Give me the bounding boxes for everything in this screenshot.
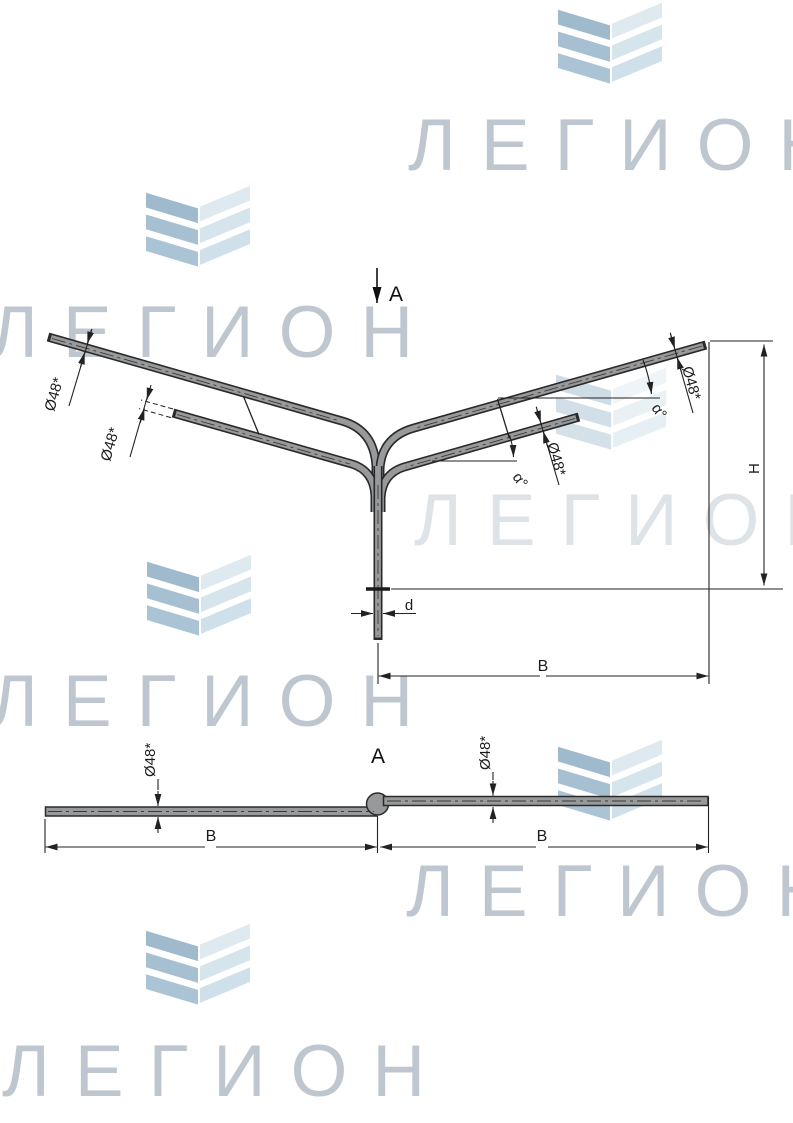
dim-diameter-top-right: Ø48* bbox=[477, 736, 494, 823]
diameter-label: Ø48* bbox=[678, 364, 704, 402]
diameter-label: Ø48* bbox=[543, 440, 569, 478]
height-label: H bbox=[746, 463, 763, 474]
brand-chevron-icon bbox=[146, 186, 250, 267]
dim-diameter-top-left: Ø48* bbox=[142, 743, 159, 833]
reach-label: B bbox=[537, 828, 548, 845]
diameter-label: Ø48* bbox=[142, 743, 159, 777]
brand-watermark-text: ЛЕГИОН bbox=[406, 851, 793, 932]
watermark-tile-4: ЛЕГИОН bbox=[0, 555, 438, 742]
diameter-label: Ø48* bbox=[42, 375, 68, 413]
dim-pipe-end: d bbox=[351, 589, 416, 614]
brand-watermark-text: ЛЕГИОН bbox=[2, 1031, 450, 1112]
brand-chevron-icon bbox=[146, 924, 250, 1005]
pipe-end-label: d bbox=[405, 597, 413, 614]
dim-reach-top-left: B bbox=[45, 816, 378, 853]
brand-watermark-text: ЛЕГИОН bbox=[0, 292, 438, 373]
reach-label: B bbox=[206, 828, 217, 845]
brand-chevron-icon bbox=[147, 555, 251, 636]
dim-diameter-lower-left: Ø48* bbox=[98, 385, 173, 463]
watermark-tile-5: ЛЕГИОН bbox=[406, 740, 793, 932]
brand-chevron-icon bbox=[558, 740, 662, 821]
drawing-page: ЛЕГИОН ЛЕГИОН ЛЕГИОН ЛЕГИОН ЛЕГИОН ЛЕГИО… bbox=[0, 0, 793, 1123]
brand-chevron-icon bbox=[558, 3, 662, 84]
brand-watermark-text: ЛЕГИОН bbox=[408, 105, 793, 186]
reach-label: B bbox=[538, 658, 549, 675]
watermark-tile-6: ЛЕГИОН bbox=[2, 924, 450, 1112]
technical-drawing: ЛЕГИОН ЛЕГИОН ЛЕГИОН ЛЕГИОН ЛЕГИОН ЛЕГИО… bbox=[0, 0, 793, 1123]
section-label: A bbox=[389, 283, 403, 306]
diameter-label: Ø48* bbox=[98, 425, 124, 463]
diameter-label: Ø48* bbox=[477, 736, 494, 770]
brand-watermark-text: ЛЕГИОН bbox=[414, 480, 793, 561]
watermark-tile-1: ЛЕГИОН bbox=[408, 3, 793, 186]
watermark-tile-3: ЛЕГИОН bbox=[414, 368, 793, 561]
left-brace bbox=[244, 397, 260, 435]
view-label: A bbox=[371, 745, 385, 768]
brand-watermark-text: ЛЕГИОН bbox=[0, 661, 438, 742]
